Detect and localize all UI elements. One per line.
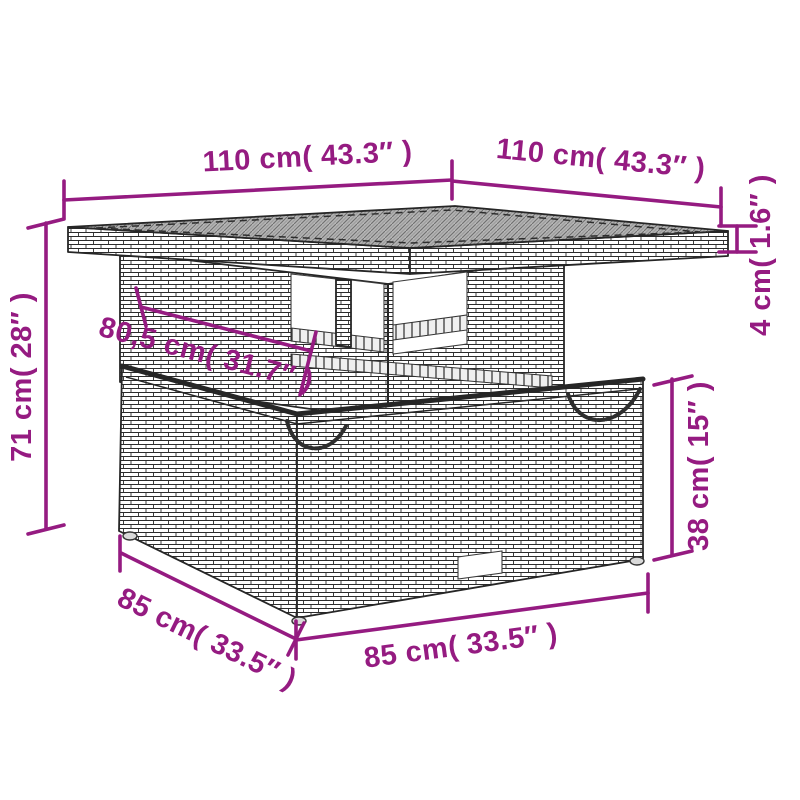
storage-base <box>119 366 644 625</box>
base-foot-left <box>123 532 137 540</box>
dimension-label-top-depth: 110 cm( 43.3″ ) <box>495 133 707 185</box>
table-illustration <box>68 206 728 625</box>
diagram-canvas: 110 cm( 43.3″ ) 110 cm( 43.3″ ) 4 cm( 1.… <box>0 0 800 800</box>
product-dimension-diagram: 110 cm( 43.3″ ) 110 cm( 43.3″ ) 4 cm( 1.… <box>0 0 800 800</box>
base-foot-right <box>630 557 644 565</box>
dimension-label-total-height: 71 cm( 28″ ) <box>6 292 38 462</box>
dimension-label-top-width: 110 cm( 43.3″ ) <box>202 136 413 179</box>
dimension-label-top-thickness: 4 cm( 1.6″ ) <box>745 174 777 336</box>
base-right-face <box>297 379 643 618</box>
pedestal-opening-right <box>393 272 467 354</box>
dimension-base-height: 38 cm( 15″ ) <box>654 376 715 560</box>
dimension-label-base-height: 38 cm( 15″ ) <box>683 381 715 551</box>
dimension-total-height: 71 cm( 28″ ) <box>6 219 64 534</box>
pedestal-corner-post <box>336 279 351 347</box>
dimension-top-width: 110 cm( 43.3″ ) <box>64 136 452 218</box>
